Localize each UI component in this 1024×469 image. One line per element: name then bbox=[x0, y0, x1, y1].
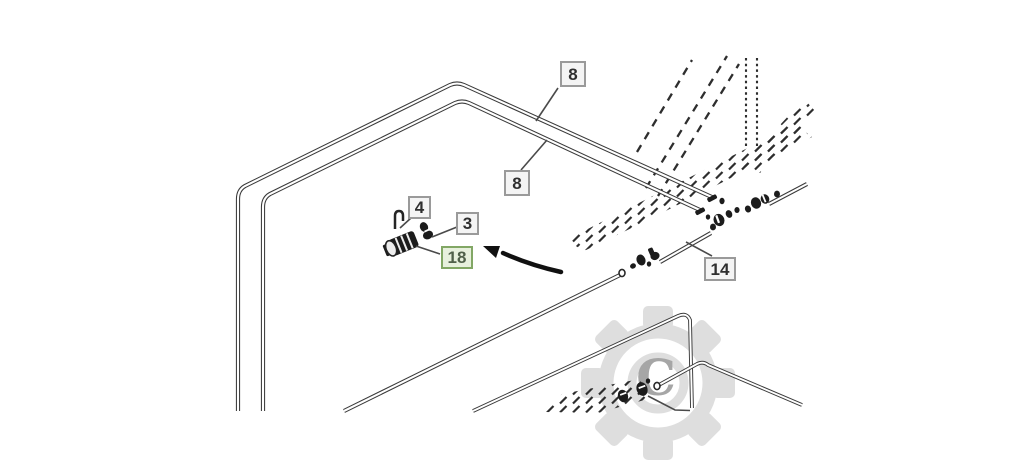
parts-diagram-canvas: C bbox=[0, 0, 1024, 469]
tube-end-ring bbox=[619, 269, 625, 276]
fitting-cluster-mid bbox=[710, 207, 740, 230]
callout-4[interactable]: 4 bbox=[408, 196, 431, 219]
fitting-cluster-lower bbox=[629, 247, 661, 270]
leader-8-upper bbox=[536, 88, 558, 121]
callout-8-lower[interactable]: 8 bbox=[504, 170, 530, 196]
direction-arrow bbox=[483, 246, 561, 272]
hose-clamp-part bbox=[418, 221, 434, 241]
hidden-structure-hatching bbox=[566, 56, 816, 251]
callout-14[interactable]: 14 bbox=[704, 257, 736, 281]
leader-18 bbox=[416, 246, 440, 254]
callout-18[interactable]: 18 bbox=[441, 246, 473, 269]
leader-4 bbox=[400, 218, 411, 228]
coupler-part-18 bbox=[381, 230, 419, 258]
leader-3 bbox=[432, 227, 457, 237]
long-lower-tube bbox=[344, 274, 622, 411]
tube-end-ring bbox=[654, 382, 660, 389]
leader-8-lower bbox=[521, 140, 547, 170]
line-art-layer: C bbox=[0, 0, 1024, 469]
callout-3[interactable]: 3 bbox=[456, 212, 479, 235]
leader-14 bbox=[686, 242, 712, 256]
callout-8-upper[interactable]: 8 bbox=[560, 61, 586, 87]
